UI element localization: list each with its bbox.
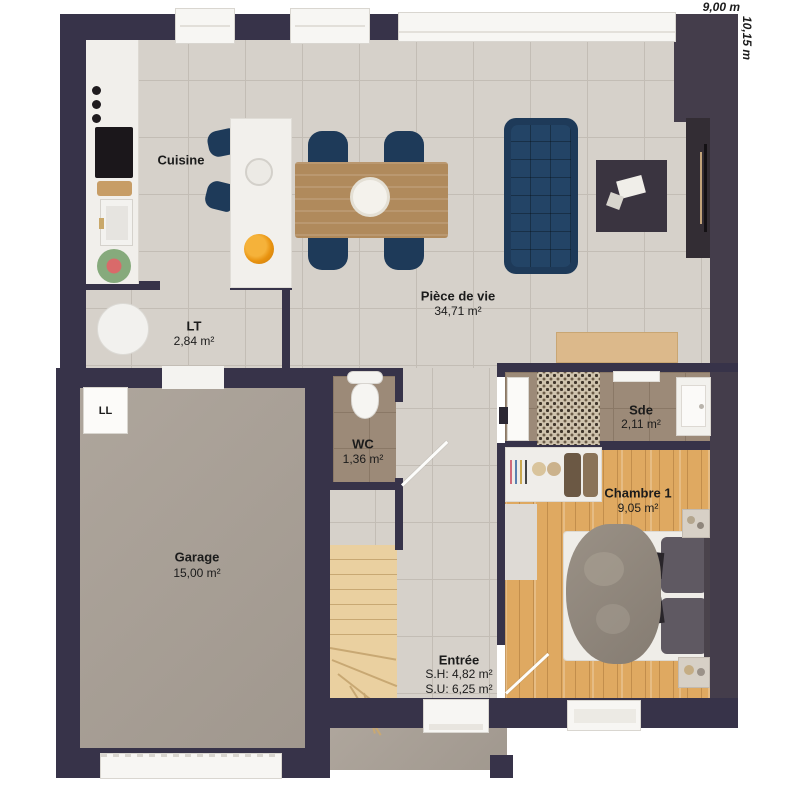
kitchen-sink: [100, 199, 133, 246]
room-label-entree: Entrée: [439, 653, 479, 668]
wall-wc-left: [325, 368, 333, 490]
shower-mosaic: [537, 372, 600, 445]
dresser: [505, 504, 537, 580]
room-area-piece-de-vie: 34,71 m²: [434, 304, 481, 318]
washing-machine: LL: [83, 387, 128, 434]
room-area-entree-sh: S.H: 4,82 m²: [425, 667, 492, 681]
table-centerpiece: [350, 177, 390, 217]
shower-room-door-leaf: [507, 377, 529, 441]
entrance-porch-slab: [330, 728, 507, 770]
floor-plan: LL Cuisine Pièce de vie 34,71: [0, 0, 800, 800]
hanging-clothes-dark: [583, 453, 598, 497]
wall-bedroom-left-upper: [497, 363, 505, 377]
nightstand-decor: [697, 522, 704, 529]
dimension-height: 10,15 m: [740, 16, 754, 60]
staircase: [330, 545, 397, 703]
burner-knob: [92, 114, 101, 123]
hanging-clothes-colored: [520, 460, 522, 484]
wall-garage-left: [56, 368, 80, 778]
hanging-clothes-dark: [564, 453, 581, 497]
sofa-cushions: [511, 125, 571, 267]
window-frame-line: [399, 31, 675, 33]
nightstand-decor: [687, 516, 695, 524]
counter-plant: [97, 249, 131, 283]
room-area-sde: 2,11 m²: [621, 417, 661, 431]
nightstand-decor: [697, 668, 705, 676]
storage-basket: [547, 462, 561, 476]
wall-wc-bottom: [325, 482, 403, 490]
front-door: [423, 699, 489, 733]
room-label-wc: WC: [352, 437, 374, 452]
room-label-piece-de-vie: Pièce de vie: [421, 289, 495, 304]
tv-stand-accent: [700, 152, 702, 224]
dimension-width: 9,00 m: [660, 0, 740, 14]
room-area-entree-su: S.U: 6,25 m²: [425, 682, 492, 696]
storage-basket: [532, 462, 546, 476]
window-top-2: [290, 8, 370, 44]
room-label-sde: Sde: [629, 403, 653, 418]
bedroom-window: [567, 700, 641, 731]
water-heater: [97, 303, 149, 355]
window-sill: [574, 709, 636, 723]
washing-machine-label: LL: [99, 405, 112, 417]
wall-wc-right-lower: [395, 478, 403, 550]
room-area-wc: 1,36 m²: [343, 452, 384, 466]
wardrobe: [505, 447, 602, 502]
sink-basin: [106, 206, 128, 240]
bay-window-top: [398, 12, 676, 42]
coffee-table: [596, 160, 667, 232]
burner-knob: [92, 100, 101, 109]
towel-rail: [613, 371, 660, 382]
nightstand: [678, 657, 710, 688]
porch-step-block: [490, 755, 513, 778]
room-label-chambre-1: Chambre 1: [604, 486, 671, 501]
room-area-lt: 2,84 m²: [174, 334, 215, 348]
duvet-fold: [584, 552, 624, 586]
toilet-bowl: [351, 383, 379, 419]
hanging-clothes-colored: [515, 460, 517, 484]
lt-garage-door-threshold: [162, 366, 224, 389]
window-top-1: [175, 8, 235, 44]
faucet: [99, 218, 104, 229]
wall-bedroom-left-mid: [497, 443, 505, 645]
window-frame-line: [180, 25, 230, 27]
shower-room-door-handle: [499, 407, 508, 424]
cooktop: [95, 127, 133, 178]
duvet-fold: [596, 604, 630, 634]
burner-knob: [92, 86, 101, 95]
garage-door-teeth: [101, 754, 281, 757]
headboard: [704, 535, 710, 660]
nightstand-decor: [684, 665, 694, 675]
duvet: [566, 524, 661, 664]
sofa: [504, 118, 578, 274]
hanging-clothes-colored: [525, 460, 527, 484]
room-area-chambre-1: 9,05 m²: [618, 501, 659, 515]
garage-door: [100, 753, 282, 779]
hanging-clothes-colored: [510, 460, 512, 484]
cutting-board: [97, 181, 132, 196]
door-sill: [429, 724, 483, 730]
wall-bottom-main: [330, 698, 738, 728]
sideboard: [556, 332, 678, 363]
island-sink: [245, 158, 273, 186]
wall-wc-right-upper: [395, 368, 403, 402]
bed-pillow: [661, 598, 707, 654]
room-label-cuisine: Cuisine: [158, 153, 205, 168]
room-label-garage: Garage: [175, 550, 220, 565]
stair-winder-line: [330, 647, 396, 661]
vanity-drain: [699, 404, 704, 409]
wall-lt-right: [282, 281, 290, 368]
fruit-bowl: [244, 234, 274, 264]
stair-winder-line: [332, 659, 398, 687]
nightstand: [682, 509, 710, 538]
bathroom-vanity: [676, 377, 711, 436]
window-frame-line: [295, 25, 365, 27]
room-label-lt: LT: [187, 319, 202, 334]
wall-left: [60, 14, 86, 368]
tv-screen: [704, 144, 707, 232]
room-area-garage: 15,00 m²: [173, 566, 220, 580]
stair-treads: [330, 545, 397, 641]
bed-pillow: [661, 537, 707, 593]
